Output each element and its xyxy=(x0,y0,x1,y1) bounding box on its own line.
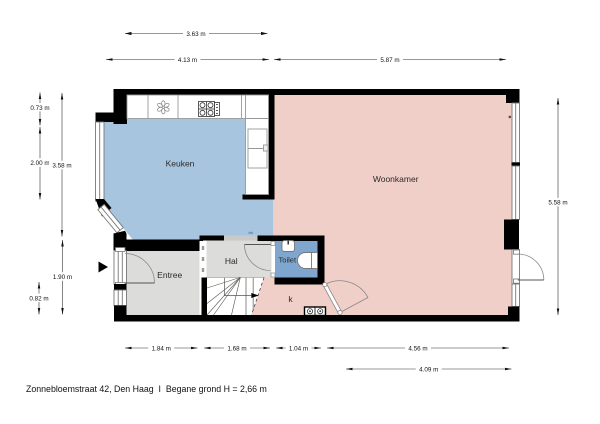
svg-text:3.63 m: 3.63 m xyxy=(186,31,205,38)
svg-text:1.68 m: 1.68 m xyxy=(227,346,246,353)
svg-text:Entree: Entree xyxy=(157,270,182,280)
svg-text:5.58 m: 5.58 m xyxy=(548,200,567,207)
svg-text:Woonkamer: Woonkamer xyxy=(373,174,419,184)
svg-text:0.82 m: 0.82 m xyxy=(29,295,48,302)
svg-text:Hal: Hal xyxy=(225,256,238,266)
svg-text:2.00 m: 2.00 m xyxy=(30,160,49,167)
svg-text:5.87 m: 5.87 m xyxy=(380,57,399,64)
svg-text:4.56 m: 4.56 m xyxy=(408,346,427,353)
svg-text:0.73 m: 0.73 m xyxy=(30,105,49,112)
svg-text:4.13 m: 4.13 m xyxy=(178,57,197,64)
svg-text:4.09 m: 4.09 m xyxy=(419,367,438,374)
svg-text:1.90 m: 1.90 m xyxy=(53,274,72,281)
svg-text:1.04 m: 1.04 m xyxy=(289,346,308,353)
svg-text:Zonnebloemstraat 42, Den Haag: Zonnebloemstraat 42, Den Haag I Begane g… xyxy=(26,384,267,394)
svg-text:1.84 m: 1.84 m xyxy=(152,346,171,353)
svg-text:Keuken: Keuken xyxy=(166,159,195,169)
svg-text:Toilet: Toilet xyxy=(279,256,297,265)
svg-text:3.58 m: 3.58 m xyxy=(52,163,71,170)
